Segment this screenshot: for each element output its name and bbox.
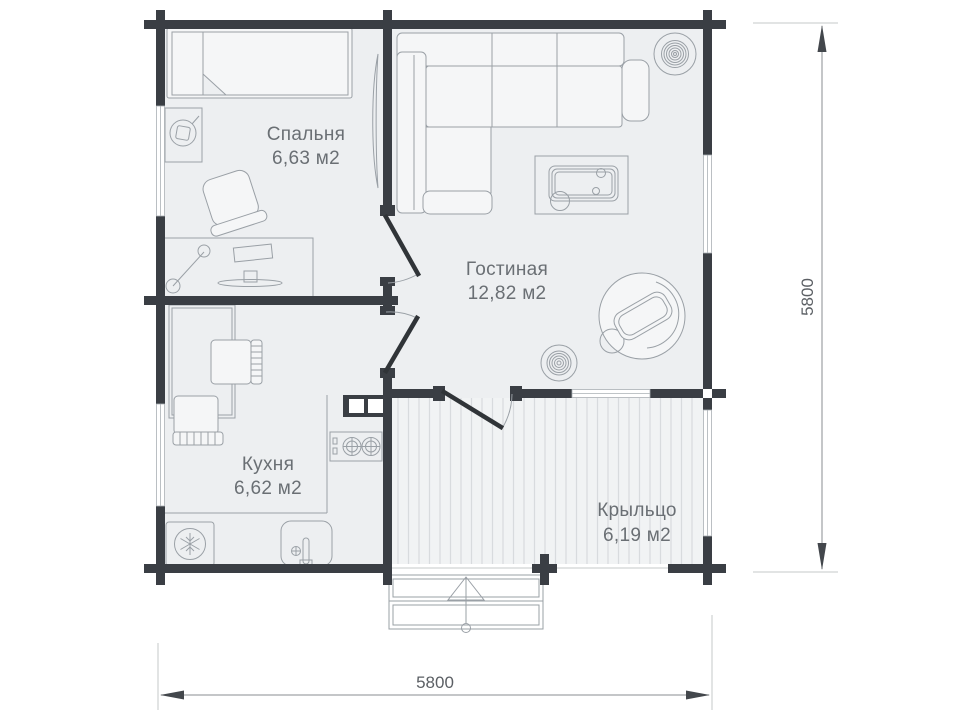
kitchen-label: Кухня (242, 454, 294, 475)
kitchen-area: 6,62 м2 (234, 478, 302, 499)
floor-plan-page: Спальня 6,63 м2 Гостиная 12,82 м2 Кухня … (0, 0, 960, 720)
kitchen-cabinet (343, 395, 387, 417)
kitchen-window (157, 404, 165, 506)
bedroom-window (157, 106, 165, 216)
porch-railing-window (704, 410, 712, 536)
dimension-right: 5800 (753, 23, 838, 572)
arrow-right-icon (686, 691, 710, 700)
dimension-bottom-value: 5800 (416, 673, 454, 692)
bedroom-area: 6,63 м2 (272, 148, 340, 169)
porch-front-window (572, 390, 650, 398)
living-window (704, 155, 712, 253)
living-area: 12,82 м2 (468, 283, 547, 304)
dimension-right-value: 5800 (798, 278, 817, 316)
arrow-down-icon (818, 543, 827, 570)
dining-chair-1 (211, 340, 262, 384)
papasan-chair (599, 273, 685, 359)
dining-chair-2 (173, 396, 223, 445)
floor-plan-drawing: Спальня 6,63 м2 Гостиная 12,82 м2 Кухня … (0, 0, 960, 720)
bed (167, 28, 352, 98)
porch-label: Крыльцо (597, 500, 677, 521)
living-label: Гостиная (466, 259, 548, 280)
arrow-left-icon (160, 691, 184, 700)
porch-area: 6,19 м2 (603, 525, 671, 546)
entrance-steps (389, 568, 668, 633)
arrow-up-icon (818, 25, 827, 52)
bedroom-label: Спальня (267, 124, 345, 145)
